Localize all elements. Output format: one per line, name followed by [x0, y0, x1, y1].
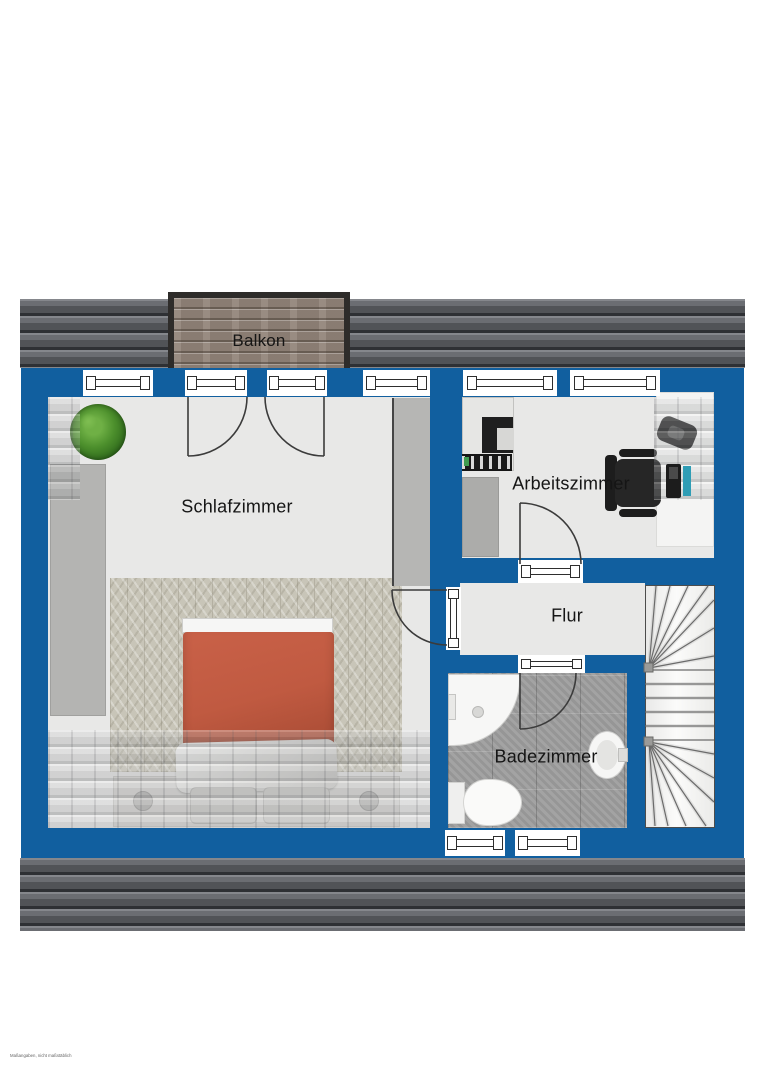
- room-label-schlafzimmer: Schlafzimmer: [181, 497, 292, 518]
- door-swing-arc: [188, 397, 581, 729]
- room-label-badezimmer: Badezimmer: [494, 747, 597, 768]
- stair-tread-shadows: [645, 586, 714, 826]
- room-label-balkon: Balkon: [232, 331, 285, 351]
- watermark-disclaimer: Maßangaben, nicht maßstäblich: [10, 1053, 71, 1058]
- room-label-arbeitszimmer: Arbeitszimmer: [512, 474, 630, 495]
- floorplan-canvas: Balkon Schlafzimmer Arbeitszimmer Flur B…: [0, 0, 764, 1080]
- plan-line-work: [0, 0, 764, 1080]
- room-label-flur: Flur: [551, 606, 583, 627]
- stair-newel-posts: [644, 663, 653, 746]
